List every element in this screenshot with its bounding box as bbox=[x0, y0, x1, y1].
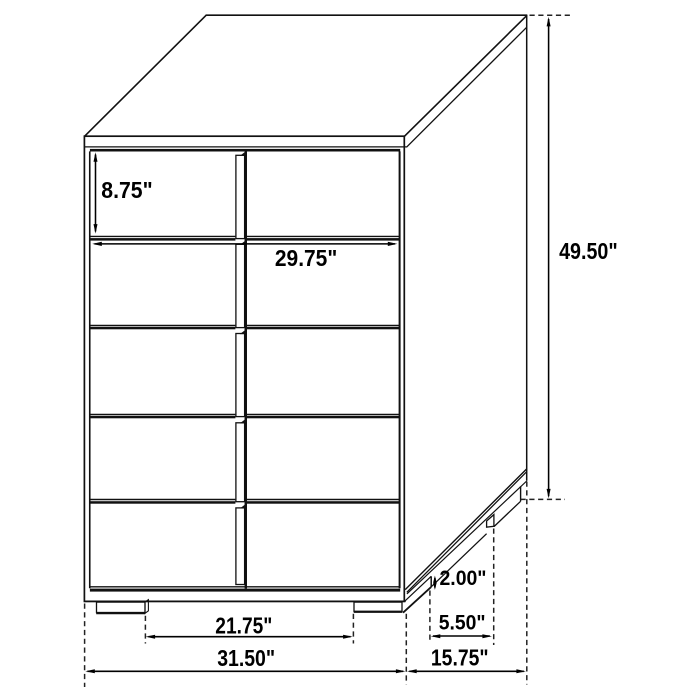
svg-text:8.75": 8.75" bbox=[101, 177, 152, 203]
svg-text:2.00": 2.00" bbox=[440, 568, 487, 591]
svg-text:15.75": 15.75" bbox=[431, 645, 489, 671]
svg-text:29.75": 29.75" bbox=[275, 245, 337, 271]
svg-text:21.75": 21.75" bbox=[215, 614, 272, 639]
svg-text:5.50": 5.50" bbox=[439, 612, 486, 635]
svg-text:31.50": 31.50" bbox=[217, 645, 275, 671]
svg-text:49.50": 49.50" bbox=[559, 239, 618, 265]
